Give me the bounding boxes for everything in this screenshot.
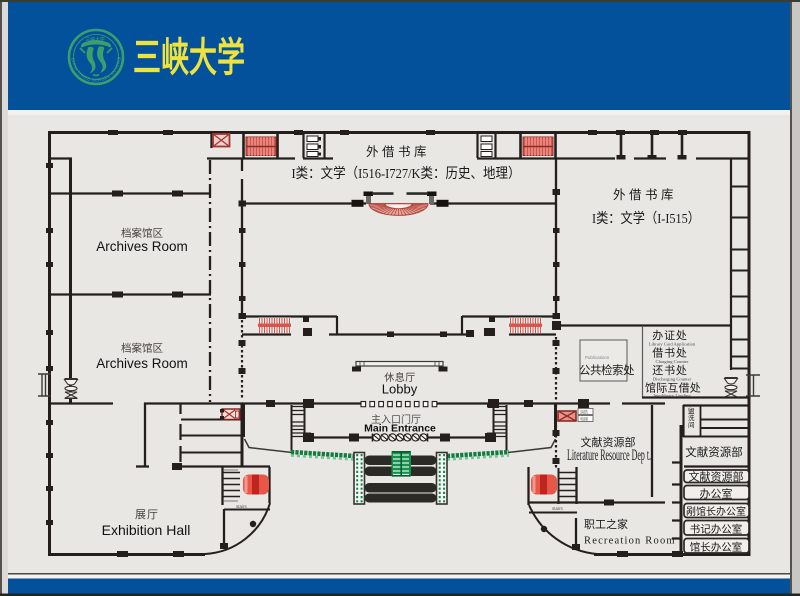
svg-text:公共检索处: 公共检索处 xyxy=(579,363,635,377)
svg-text:Library Card Application: Library Card Application xyxy=(649,342,696,347)
svg-text:档案馆区: 档案馆区 xyxy=(121,227,163,240)
svg-text:stairs: stairs xyxy=(552,506,564,511)
svg-text:Recreation Room: Recreation Room xyxy=(584,536,676,547)
svg-text:I类：文学（I-I515）: I类：文学（I-I515） xyxy=(592,211,700,227)
svg-text:Lobby: Lobby xyxy=(382,382,418,397)
svg-text:办公室: 办公室 xyxy=(700,487,733,501)
svg-text:还书处: 还书处 xyxy=(652,364,687,377)
svg-text:Publications: Publications xyxy=(585,355,610,360)
svg-text:外借书库: 外借书库 xyxy=(366,144,430,159)
svg-text:三峡大学: 三峡大学 xyxy=(86,36,105,43)
svg-text:Main Entrance: Main Entrance xyxy=(364,423,436,435)
svg-text:消防: 消防 xyxy=(580,409,588,415)
svg-text:盥: 盥 xyxy=(688,406,695,415)
svg-text:档案馆区: 档案馆区 xyxy=(121,342,163,355)
svg-text:间: 间 xyxy=(688,421,695,429)
svg-text:stairs: stairs xyxy=(236,504,248,509)
svg-text:电梯: 电梯 xyxy=(580,416,588,422)
svg-text:展厅: 展厅 xyxy=(135,508,159,521)
svg-text:三峡大学: 三峡大学 xyxy=(133,35,245,80)
svg-text:职工之家: 职工之家 xyxy=(584,517,628,531)
svg-text:办证处: 办证处 xyxy=(652,329,687,342)
svg-text:Charging Counter: Charging Counter xyxy=(656,359,689,364)
svg-text:Archives Room: Archives Room xyxy=(96,356,188,371)
svg-text:馆长办公室: 馆长办公室 xyxy=(690,541,743,554)
svg-text:洗: 洗 xyxy=(688,413,695,422)
svg-text:剐馆长办公室: 剐馆长办公室 xyxy=(686,505,746,518)
svg-text:外借书库: 外借书库 xyxy=(613,187,677,202)
svg-text:Exhibition Hall: Exhibition Hall xyxy=(102,522,191,538)
svg-text:文献资源部: 文献资源部 xyxy=(685,445,743,459)
svg-text:I类：文学（I516-I727/K类：历史、地理）: I类：文学（I516-I727/K类：历史、地理） xyxy=(292,166,521,182)
svg-text:借书处: 借书处 xyxy=(652,347,687,360)
svg-text:文献资源部: 文献资源部 xyxy=(689,470,744,484)
svg-text:书记办公室: 书记办公室 xyxy=(690,523,743,536)
svg-text:Discharging Counter: Discharging Counter xyxy=(653,377,692,382)
svg-text:Literature Resource Dep t.: Literature Resource Dep t. xyxy=(567,447,651,464)
svg-text:Archives Room: Archives Room xyxy=(96,239,188,254)
